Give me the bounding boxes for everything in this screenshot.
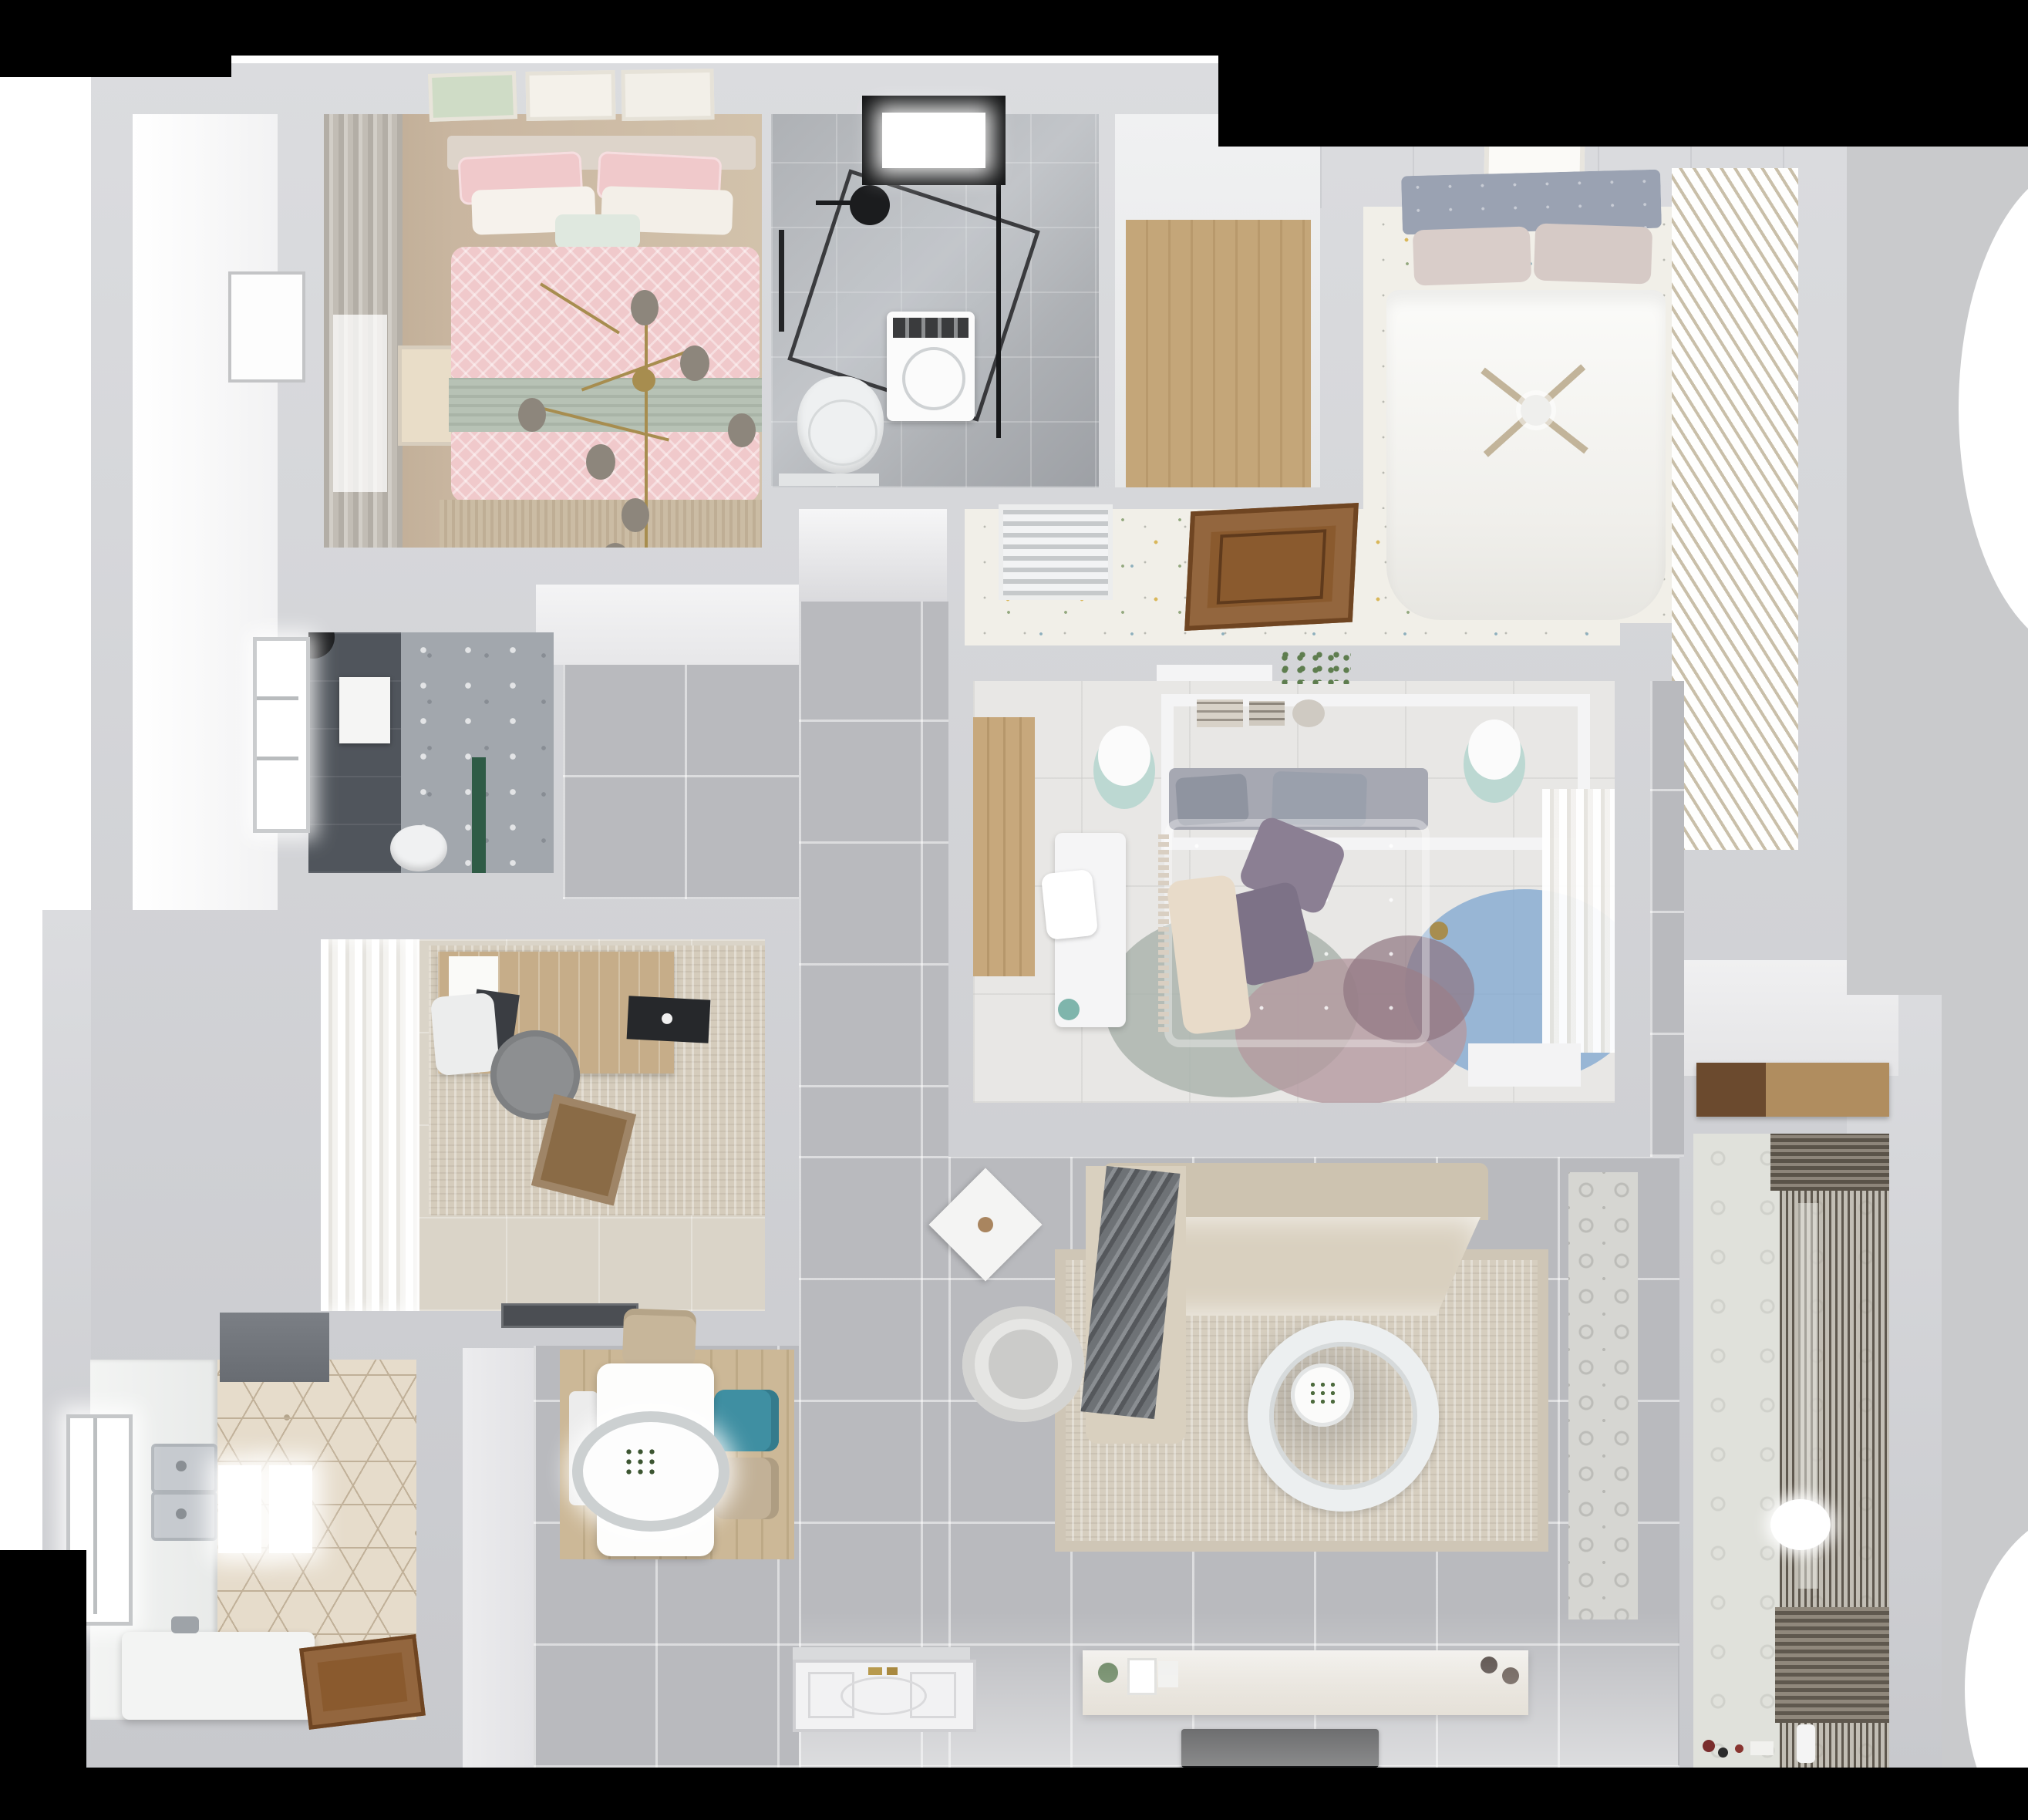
shower-room-dark-wall xyxy=(308,632,401,873)
bedroom3-room xyxy=(973,681,1615,1103)
bed3-fringe-left xyxy=(1158,831,1169,1032)
sink-drain xyxy=(176,1461,187,1471)
desk-tablet xyxy=(627,996,711,1043)
tablet-logo-dot xyxy=(662,1013,673,1025)
bed3-gold-ornament xyxy=(1430,922,1448,940)
bedroom2-fringe-rug xyxy=(440,500,762,548)
balcony-toy xyxy=(1718,1748,1728,1758)
mint-stool-right-top xyxy=(1468,720,1521,780)
balcony-paper xyxy=(1750,1741,1774,1755)
bedroom3-teal-cup xyxy=(1058,999,1080,1020)
bathroom-mat xyxy=(779,474,879,486)
bedroom2-side-door xyxy=(228,271,305,383)
chandelier-bulb xyxy=(631,290,659,325)
chandelier-bulb xyxy=(622,498,649,532)
bedroom2-window-glow xyxy=(333,315,387,492)
bedroom2-art-frame-right xyxy=(621,69,714,121)
chandelier-joint xyxy=(632,369,655,392)
armchair-cushion xyxy=(989,1330,1058,1399)
coffee-table-plate xyxy=(1291,1363,1354,1427)
window-mullion xyxy=(257,696,298,700)
balcony-floor xyxy=(1693,1134,1889,1768)
corridor-tile xyxy=(799,602,948,1087)
shelf-books xyxy=(1249,701,1285,726)
chandelier-bulb xyxy=(680,345,709,381)
shower-room-window xyxy=(253,637,310,833)
skylight-glass xyxy=(882,113,985,168)
black-band-top-right xyxy=(1218,0,2028,147)
bathroom-toilet xyxy=(797,376,884,474)
bed2-pillow-mint xyxy=(555,214,640,248)
balcony-bottle xyxy=(1797,1724,1815,1763)
bed1-duvet xyxy=(1386,290,1666,620)
bedroom3-sheer-curtains xyxy=(1542,789,1615,1053)
kitchen-light-panel xyxy=(218,1465,261,1553)
bed1-pillow-right xyxy=(1534,223,1652,284)
closet-wood-floor xyxy=(1126,220,1311,487)
study-floor-mat xyxy=(501,1303,638,1328)
corridor-arm-tile xyxy=(563,665,799,899)
bedroom2-floor xyxy=(324,114,762,548)
kitchen-sink-lower xyxy=(151,1491,217,1541)
shelf-books xyxy=(1197,699,1243,727)
shower-room-floor xyxy=(308,632,554,873)
pantry-white-band xyxy=(463,1348,534,1768)
dining-pendant-lamp xyxy=(572,1411,729,1532)
toilet-seat-line xyxy=(808,399,878,466)
coffee-table-plant xyxy=(1308,1380,1337,1407)
lamp-plant-center xyxy=(623,1447,660,1478)
side-table-decor xyxy=(975,1214,996,1235)
island-faucet xyxy=(171,1616,199,1633)
chandelier-bulb xyxy=(518,398,546,432)
living-armchair xyxy=(962,1306,1084,1422)
kitchen-island xyxy=(122,1632,315,1720)
open-wood-door xyxy=(1184,503,1359,631)
chandelier-bulb xyxy=(586,444,615,480)
ceiling-fan-hub xyxy=(1521,395,1551,426)
floor-plan-render xyxy=(0,0,2028,1820)
window-mullion xyxy=(93,1418,97,1614)
black-block-top-left xyxy=(0,0,231,77)
door-gold-handle-2 xyxy=(887,1667,898,1675)
corridor-glow xyxy=(799,509,947,602)
black-band-bottom xyxy=(0,1768,2028,1820)
bedroom2-art-frame-mid xyxy=(525,70,615,121)
door-panel-line xyxy=(1217,529,1327,605)
washer-door xyxy=(902,347,965,410)
bed1-pillow-left xyxy=(1413,226,1531,285)
shower2-green-accent xyxy=(472,757,486,873)
window-mullion xyxy=(257,757,298,760)
front-door-flat xyxy=(793,1660,976,1732)
bedroom2-art-frame-green xyxy=(428,71,517,122)
bedroom3-wall-plant xyxy=(1277,652,1351,684)
bedroom2-leaning-art xyxy=(398,345,455,446)
blinds-bottom-stack xyxy=(1775,1607,1889,1723)
balcony-floor-light xyxy=(1770,1499,1831,1550)
blinds-top-stack xyxy=(1770,1134,1889,1191)
bedroom3-wood-slat-wall xyxy=(973,717,1035,976)
bedroom1-wardrobe xyxy=(1672,168,1798,850)
shower-wall-bar xyxy=(779,230,784,332)
mint-stool-left-top xyxy=(1098,726,1150,786)
entry-patterned-tile-strip xyxy=(1568,1172,1638,1619)
chandelier-bulb xyxy=(728,413,756,447)
kitchen-fridge xyxy=(220,1313,329,1382)
kitchen-open-door xyxy=(299,1634,426,1730)
washer-control-panel xyxy=(893,318,969,338)
study-floor xyxy=(321,939,765,1311)
study-white-chair xyxy=(430,993,500,1077)
door-panel-ellipse xyxy=(841,1677,927,1715)
shelf-bowl xyxy=(1292,699,1325,727)
bed2-duvet-upper xyxy=(451,247,760,378)
bathroom-skylight xyxy=(862,96,1006,185)
shower2-toilet xyxy=(390,825,447,871)
shower-head-icon xyxy=(850,185,890,225)
door-gold-handle xyxy=(868,1667,882,1675)
balcony-toy xyxy=(1703,1740,1715,1752)
bedroom3-desk-chair xyxy=(1041,869,1099,940)
washing-machine xyxy=(887,312,975,421)
dining-chair-teal xyxy=(714,1390,779,1451)
black-band-bottom-left xyxy=(0,1550,86,1820)
bedroom3-white-box xyxy=(1468,1043,1581,1087)
closet-room xyxy=(1115,114,1320,487)
dining-chair-top xyxy=(622,1308,697,1367)
sink-drain xyxy=(176,1508,187,1519)
balcony-toy xyxy=(1735,1744,1743,1753)
kitchen-light-panel xyxy=(269,1465,312,1553)
shower2-towel-box xyxy=(339,677,390,743)
bed1-headboard xyxy=(1401,170,1662,235)
shower-arm xyxy=(816,201,862,205)
kitchen-sink-upper xyxy=(151,1444,217,1493)
balcony-shelf-wood xyxy=(1696,1063,1889,1117)
bedroom2-closet-band xyxy=(536,585,799,665)
bed3-gray-pillow-left xyxy=(1175,773,1249,826)
ac-vent-grille xyxy=(999,504,1113,600)
bedroom3-right-strip-tile xyxy=(1650,681,1684,1157)
study-curtains xyxy=(321,939,419,1311)
entry-threshold xyxy=(793,1647,970,1660)
